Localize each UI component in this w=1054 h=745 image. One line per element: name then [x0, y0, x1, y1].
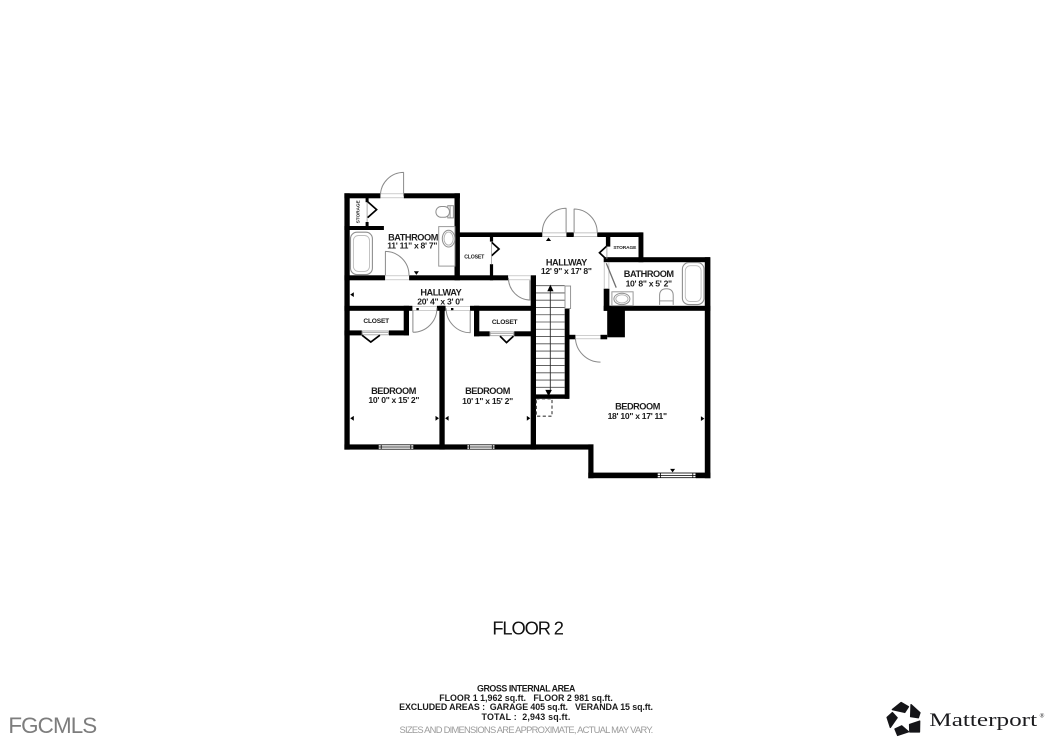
svg-text:SIZES AND DIMENSIONS ARE APPRO: SIZES AND DIMENSIONS ARE APPROXIMATE, AC… [400, 724, 654, 735]
svg-text:FLOOR 2: FLOOR 2 [492, 618, 563, 639]
svg-text:STORAGE: STORAGE [356, 200, 362, 224]
svg-text:20' 4" x 3' 0": 20' 4" x 3' 0" [417, 297, 463, 307]
svg-text:EXCLUDED AREAS : GARAGE 405 s: EXCLUDED AREAS : GARAGE 405 sq.ft. VERAN… [399, 702, 653, 712]
svg-text:TOTAL : 2,943 sq.ft.: TOTAL : 2,943 sq.ft. [481, 712, 570, 722]
svg-text:®: ® [1040, 713, 1045, 720]
svg-text:18' 10" x 17' 11": 18' 10" x 17' 11" [608, 411, 667, 421]
svg-text:10' 1" x 15' 2": 10' 1" x 15' 2" [462, 396, 513, 406]
svg-text:STORAGE: STORAGE [613, 245, 637, 251]
svg-text:CLOSET: CLOSET [492, 319, 518, 326]
svg-text:12' 9" x 17' 8": 12' 9" x 17' 8" [541, 266, 592, 276]
svg-text:BEDROOM: BEDROOM [465, 386, 511, 396]
svg-text:10' 0" x 15' 2": 10' 0" x 15' 2" [368, 395, 419, 405]
svg-text:FGCMLS: FGCMLS [8, 713, 96, 738]
svg-text:CLOSET: CLOSET [464, 254, 485, 260]
svg-text:CLOSET: CLOSET [363, 318, 389, 325]
svg-text:Matterport: Matterport [929, 709, 1038, 731]
svg-text:11' 11" x 8' 7": 11' 11" x 8' 7" [387, 241, 437, 251]
svg-text:10' 8" x 5' 2": 10' 8" x 5' 2" [626, 279, 672, 289]
svg-text:BEDROOM: BEDROOM [615, 402, 661, 412]
